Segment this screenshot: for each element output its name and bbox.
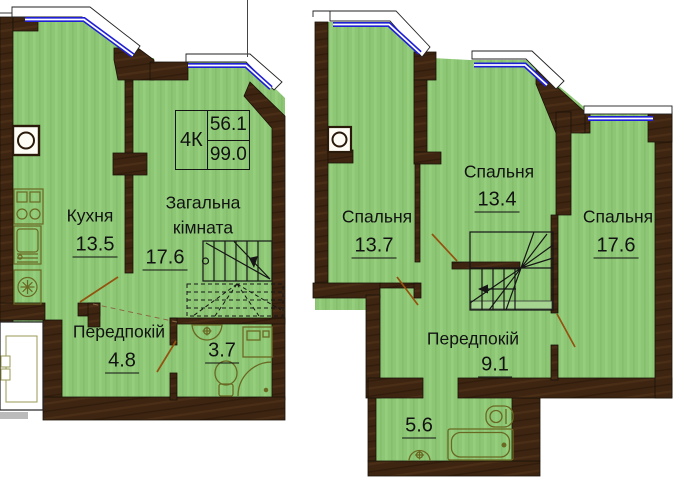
room-label-bedroom-middle: Спальня: [464, 162, 534, 183]
room-area-bath-left: 3.7: [205, 341, 239, 364]
room-area-hall-right: 9.1: [478, 355, 512, 378]
room-area-bedroom-left: 13.7: [352, 236, 397, 259]
room-area-kitchen: 13.5: [73, 235, 118, 258]
area-total-label: 99.0: [208, 141, 249, 170]
room-label-bedroom-right: Спальня: [583, 207, 653, 228]
room-label-hall-right: Передпокій: [427, 329, 519, 350]
apartment-info-box: 4К 56.1 99.0: [175, 110, 250, 170]
floorplan-canvas: 4К 56.1 99.0 Кухня 13.5 Загальна кімната…: [0, 0, 682, 500]
room-label-hall-left: Передпокій: [73, 322, 165, 343]
room-label-kitchen: Кухня: [67, 206, 114, 227]
room-label-bedroom-left: Спальня: [342, 207, 412, 228]
balcony-outline: [584, 106, 672, 114]
apartment-type-label: 4К: [176, 111, 208, 169]
room-area-living: 17.6: [143, 248, 188, 271]
vent-shaft-icon: [328, 127, 351, 152]
elevator-icon: [0, 322, 43, 419]
room-area-bath-right: 5.6: [402, 416, 436, 439]
room-area-bedroom-right: 17.6: [594, 236, 639, 259]
room-label-living: Загальна кімната: [147, 191, 259, 240]
room-area-bedroom-middle: 13.4: [475, 190, 520, 213]
area-level-label: 56.1: [208, 111, 249, 141]
room-area-hall-left: 4.8: [105, 351, 139, 374]
vent-shaft-icon: [13, 126, 39, 155]
